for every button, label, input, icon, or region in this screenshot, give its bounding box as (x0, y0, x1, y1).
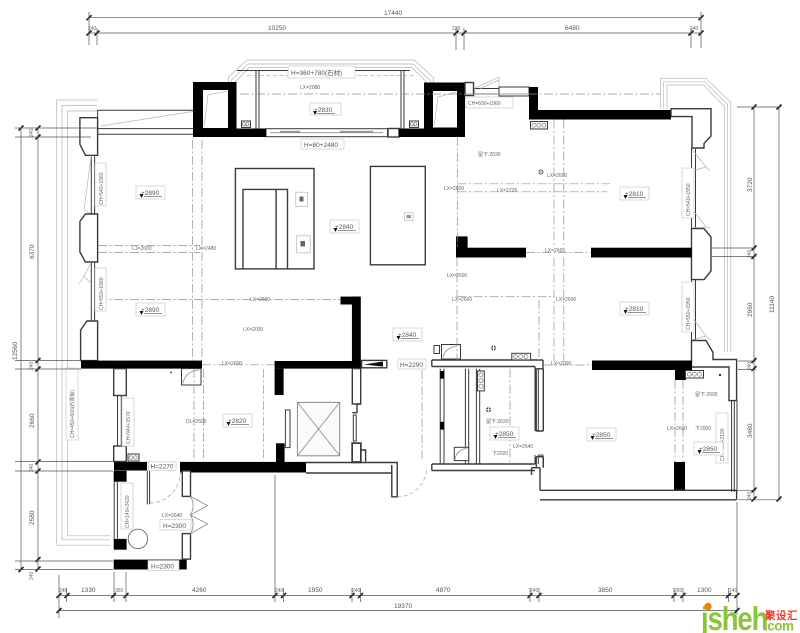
svg-text:下2020: 下2020 (492, 451, 508, 457)
svg-text:LX=2080: LX=2080 (300, 85, 320, 91)
svg-text:.com: .com (764, 619, 794, 633)
svg-text:+2850: +2850 (495, 431, 514, 438)
svg-text:3850: 3850 (598, 587, 613, 594)
svg-text:CH=550+1960: CH=550+1960 (99, 277, 105, 310)
svg-text:CH=550+1950: CH=550+1950 (686, 297, 692, 330)
svg-text:12560: 12560 (12, 342, 19, 360)
svg-text:LX=2000: LX=2000 (243, 327, 263, 333)
svg-text:+2840: +2840 (335, 224, 354, 231)
svg-text:H=2300: H=2300 (151, 564, 174, 571)
svg-text:LX=2000: LX=2000 (551, 361, 571, 367)
svg-text:1300: 1300 (697, 587, 712, 594)
svg-text:4260: 4260 (192, 587, 207, 594)
svg-text:19370: 19370 (394, 603, 412, 610)
svg-text:LX=2640: LX=2640 (162, 513, 182, 519)
svg-text:6480: 6480 (565, 25, 580, 32)
svg-text:1330: 1330 (81, 587, 96, 594)
svg-text:17440: 17440 (384, 10, 402, 17)
svg-text:6370: 6370 (29, 244, 36, 259)
svg-text:1950: 1950 (308, 587, 323, 594)
svg-text:2960: 2960 (747, 302, 754, 317)
svg-text:LX=2600: LX=2600 (452, 297, 472, 303)
svg-text:LX=2600: LX=2600 (222, 361, 242, 367)
svg-text:H=2290: H=2290 (400, 362, 423, 369)
svg-text:+2850: +2850 (699, 446, 718, 453)
svg-text:+2830: +2830 (314, 107, 333, 114)
svg-text:+2890: +2890 (141, 307, 160, 314)
svg-text:240: 240 (29, 571, 35, 580)
svg-text:240: 240 (29, 128, 35, 137)
svg-text:240: 240 (747, 491, 753, 500)
svg-text:H=2300: H=2300 (163, 523, 186, 530)
svg-text:CH=450+600(石膏板): CH=450+600(石膏板) (69, 390, 76, 438)
svg-text:240: 240 (530, 588, 539, 594)
svg-text:H=360+780(石材): H=360+780(石材) (291, 68, 342, 77)
svg-text:下2000: 下2000 (695, 426, 711, 432)
svg-text:+2810: +2810 (625, 191, 644, 198)
svg-text:3720: 3720 (747, 177, 754, 192)
svg-text:留下:2000: 留下:2000 (695, 391, 718, 398)
svg-text:LX=2600: LX=2600 (250, 297, 270, 303)
svg-text:CH=940+1570: CH=940+1570 (126, 411, 132, 444)
svg-text:H=2270: H=2270 (151, 464, 174, 471)
svg-text:L1=2600: L1=2600 (132, 246, 152, 252)
svg-text:350: 350 (115, 588, 124, 594)
svg-text:LX=2600: LX=2600 (447, 273, 467, 279)
svg-text:240: 240 (275, 588, 284, 594)
svg-text:140: 140 (729, 588, 738, 594)
svg-text:260: 260 (674, 588, 683, 594)
svg-text:+2810: +2810 (625, 306, 644, 313)
svg-text:留下:2030: 留下:2030 (478, 151, 501, 158)
svg-text:2580: 2580 (29, 510, 36, 525)
svg-text:4870: 4870 (436, 587, 451, 594)
svg-text:11140: 11140 (769, 296, 776, 313)
svg-text:留下:2020: 留下:2020 (486, 418, 509, 425)
svg-text:240: 240 (747, 361, 753, 370)
svg-text:LX=2600: LX=2600 (545, 248, 565, 254)
svg-text:10250: 10250 (268, 25, 286, 32)
svg-text:LX=2600: LX=2600 (667, 426, 687, 432)
svg-text:CH=140+2420: CH=140+2420 (125, 495, 131, 528)
svg-text:LX=2728: LX=2728 (497, 188, 517, 194)
svg-text:CH=600+1960: CH=600+1960 (468, 101, 501, 107)
svg-text:+2890: +2890 (141, 190, 160, 197)
svg-text:+2820: +2820 (228, 418, 247, 425)
svg-text:3480: 3480 (747, 423, 754, 438)
svg-text:LX=2600: LX=2600 (547, 173, 567, 179)
svg-text:LX=2600: LX=2600 (556, 297, 576, 303)
svg-text:CH=540+1950: CH=540+1950 (686, 183, 692, 216)
svg-text:CH=540+1960: CH=540+1960 (99, 172, 105, 205)
svg-text:DL=2600: DL=2600 (186, 419, 207, 425)
svg-text:H=80+2480: H=80+2480 (304, 142, 338, 149)
svg-text:+2840: +2840 (398, 332, 417, 339)
svg-text:LX=2600: LX=2600 (444, 186, 464, 192)
svg-text:2660: 2660 (29, 413, 36, 428)
svg-text:240: 240 (352, 588, 361, 594)
svg-text:+2850: +2850 (592, 432, 611, 439)
svg-text:LX=2480: LX=2480 (196, 246, 216, 252)
svg-text:LX=2640: LX=2640 (513, 444, 533, 450)
